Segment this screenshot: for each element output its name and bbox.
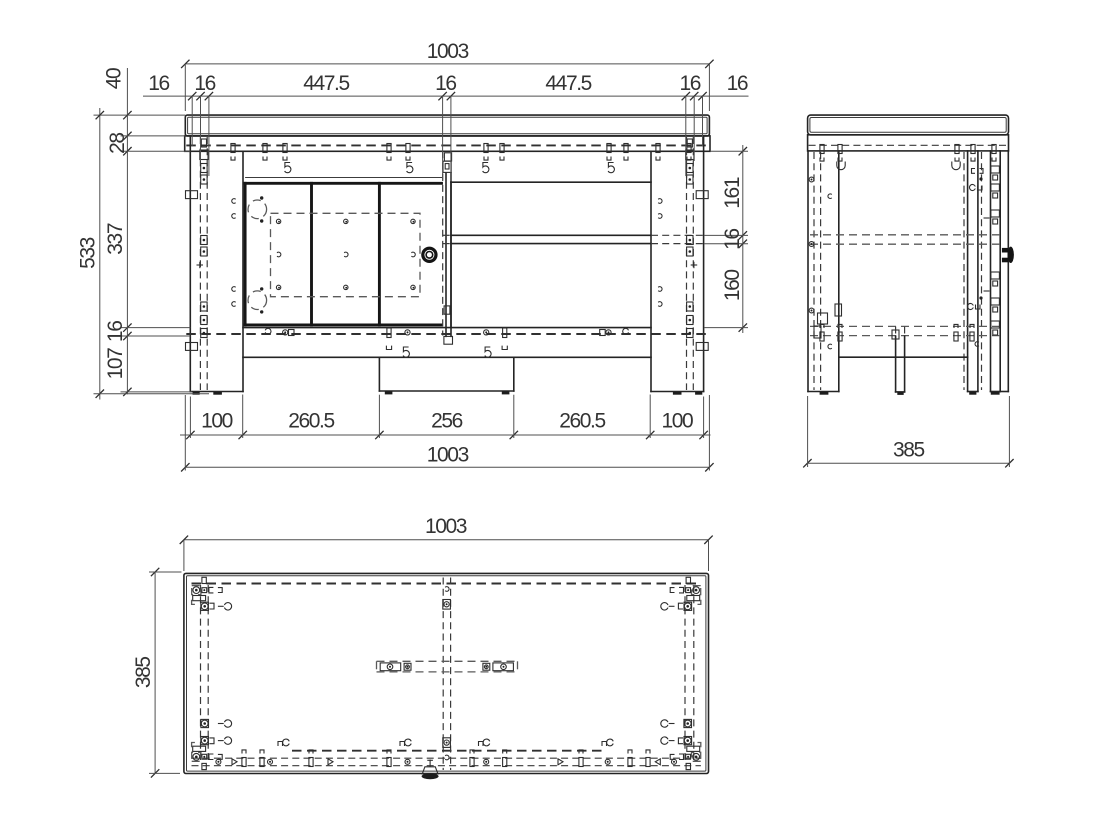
svg-text:16: 16 [104,321,127,342]
svg-text:100: 100 [201,410,233,433]
svg-text:16: 16 [435,72,456,95]
svg-text:16: 16 [727,72,748,95]
svg-text:260.5: 260.5 [559,410,605,433]
svg-text:107: 107 [104,348,127,380]
svg-text:40: 40 [103,68,126,89]
svg-text:337: 337 [104,223,127,255]
svg-text:28: 28 [106,133,129,154]
svg-text:100: 100 [661,410,693,433]
svg-text:1003: 1003 [427,444,469,467]
svg-text:385: 385 [132,657,155,689]
svg-text:385: 385 [893,439,925,462]
svg-text:16: 16 [148,72,169,95]
svg-text:160: 160 [721,270,744,302]
svg-text:16: 16 [680,72,701,95]
svg-text:161: 161 [721,177,744,209]
svg-text:256: 256 [431,410,463,433]
svg-text:447.5: 447.5 [545,72,591,95]
svg-text:533: 533 [76,237,99,269]
svg-text:1003: 1003 [427,40,469,63]
svg-text:447.5: 447.5 [303,72,349,95]
svg-text:1003: 1003 [425,515,467,538]
svg-text:260.5: 260.5 [288,410,334,433]
svg-text:16: 16 [194,72,215,95]
svg-text:16: 16 [721,229,744,250]
